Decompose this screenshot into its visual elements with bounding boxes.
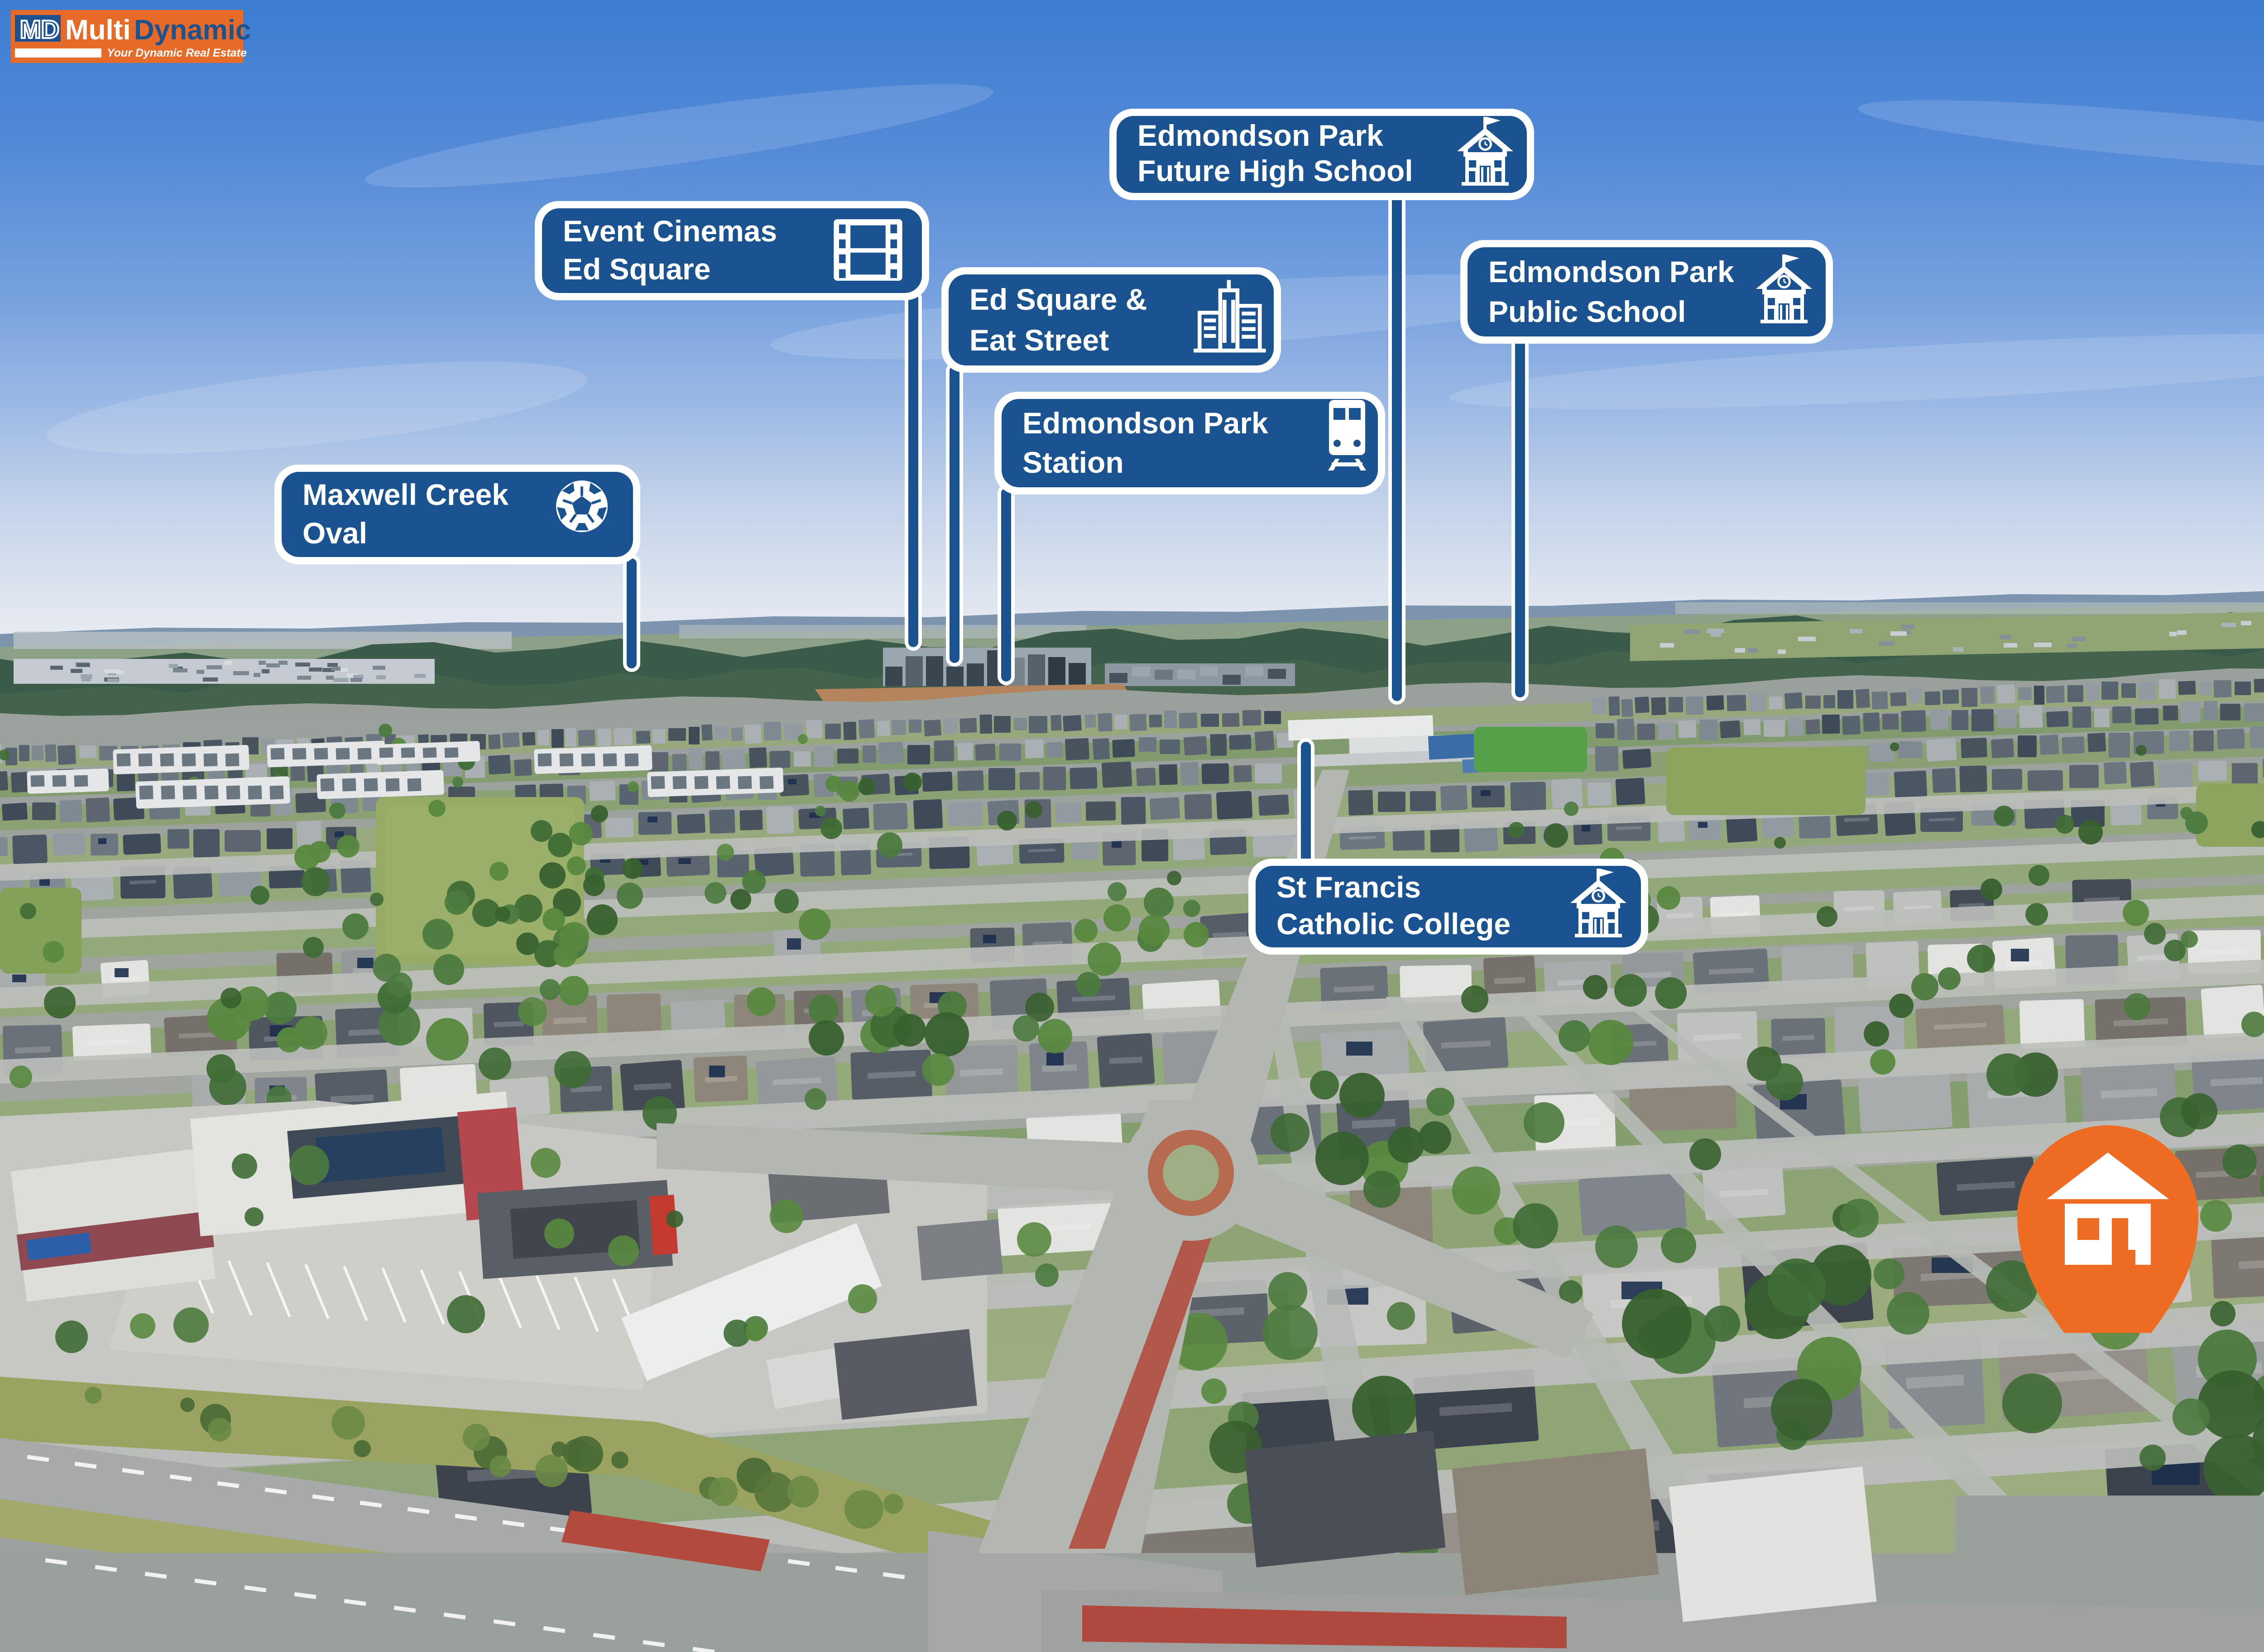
svg-text:Maxwell Creek: Maxwell Creek [302,478,508,511]
svg-text:Ed Square: Ed Square [563,252,710,286]
svg-text:Your Dynamic Real Estate: Your Dynamic Real Estate [107,47,247,59]
svg-text:Event Cinemas: Event Cinemas [563,214,777,248]
svg-text:Multi: Multi [65,14,131,46]
svg-text:Ed Square &: Ed Square & [969,283,1147,316]
svg-text:Station: Station [1022,446,1124,479]
svg-text:St Francis: St Francis [1276,870,1421,904]
svg-text:Edmondson Park: Edmondson Park [1022,406,1268,440]
svg-text:Edmondson Park: Edmondson Park [1488,255,1734,288]
svg-text:MD: MD [20,15,59,43]
svg-text:Dynamic: Dynamic [134,14,251,46]
svg-text:Public School: Public School [1488,295,1686,328]
svg-text:Edmondson Park: Edmondson Park [1137,119,1383,152]
svg-text:Future High School: Future High School [1137,154,1413,187]
svg-text:Eat Street: Eat Street [969,323,1109,357]
svg-text:Oval: Oval [302,516,367,550]
svg-text:Catholic College: Catholic College [1276,907,1511,941]
